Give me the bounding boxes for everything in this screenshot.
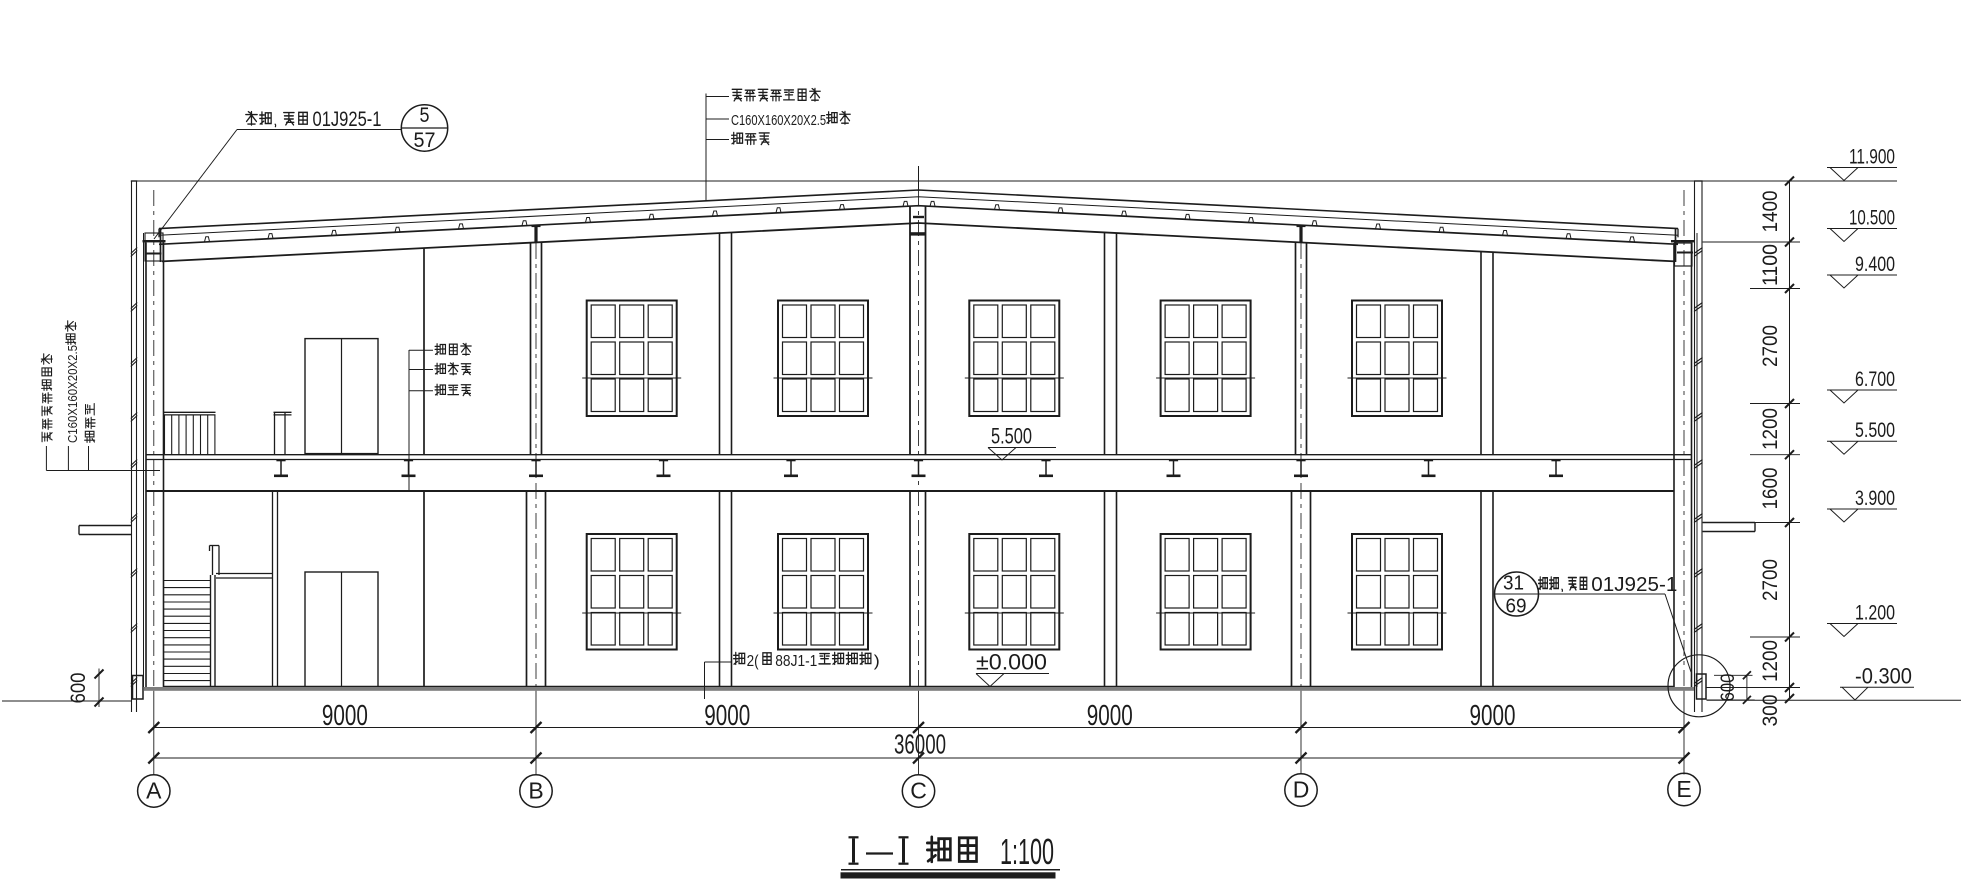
svg-text:1100: 1100 — [1759, 244, 1782, 286]
svg-text:11.900: 11.900 — [1849, 146, 1895, 169]
svg-text:2700: 2700 — [1759, 325, 1782, 367]
svg-text:600: 600 — [67, 673, 90, 704]
svg-text:2(: 2( — [747, 653, 760, 670]
svg-text:10.500: 10.500 — [1849, 207, 1895, 230]
svg-text:5: 5 — [420, 104, 430, 127]
svg-text:1:100: 1:100 — [1000, 831, 1054, 872]
svg-text:5.500: 5.500 — [1855, 419, 1895, 442]
svg-text:9.400: 9.400 — [1855, 253, 1895, 276]
svg-text:1.200: 1.200 — [1855, 602, 1895, 625]
svg-text:): ) — [874, 653, 880, 670]
svg-text:3.900: 3.900 — [1855, 487, 1895, 510]
svg-text:6.700: 6.700 — [1855, 368, 1895, 391]
svg-text:A: A — [146, 778, 162, 804]
svg-text:D: D — [1293, 777, 1310, 803]
svg-text:C160X160X20X2.5: C160X160X20X2.5 — [65, 345, 80, 443]
svg-text:9000: 9000 — [1087, 700, 1133, 732]
svg-text:9000: 9000 — [1470, 700, 1516, 732]
svg-text:±0.000: ±0.000 — [976, 650, 1047, 675]
svg-text:57: 57 — [414, 129, 436, 152]
svg-text:E: E — [1676, 776, 1691, 802]
svg-text:31: 31 — [1503, 573, 1524, 595]
svg-text:1200: 1200 — [1759, 408, 1782, 450]
svg-text:9000: 9000 — [322, 700, 368, 732]
svg-text:1400: 1400 — [1759, 191, 1782, 233]
svg-text:600: 600 — [1718, 674, 1739, 702]
svg-text:1200: 1200 — [1759, 640, 1782, 682]
svg-text:1600: 1600 — [1759, 468, 1782, 510]
svg-text:B: B — [528, 778, 543, 804]
svg-text:01J925-1: 01J925-1 — [313, 108, 382, 131]
svg-text:300: 300 — [1759, 695, 1782, 727]
svg-text:5.500: 5.500 — [991, 424, 1032, 449]
svg-text:88J1-1: 88J1-1 — [775, 653, 817, 670]
svg-text:-0.300: -0.300 — [1855, 664, 1912, 689]
svg-text:C160X160X20X2.5: C160X160X20X2.5 — [731, 112, 826, 129]
svg-text:9000: 9000 — [704, 700, 750, 732]
svg-text:69: 69 — [1506, 596, 1527, 618]
svg-text:2700: 2700 — [1759, 559, 1782, 601]
svg-text:36000: 36000 — [894, 729, 946, 760]
svg-text:01J925-1: 01J925-1 — [1591, 574, 1677, 596]
svg-text:C: C — [910, 778, 927, 804]
